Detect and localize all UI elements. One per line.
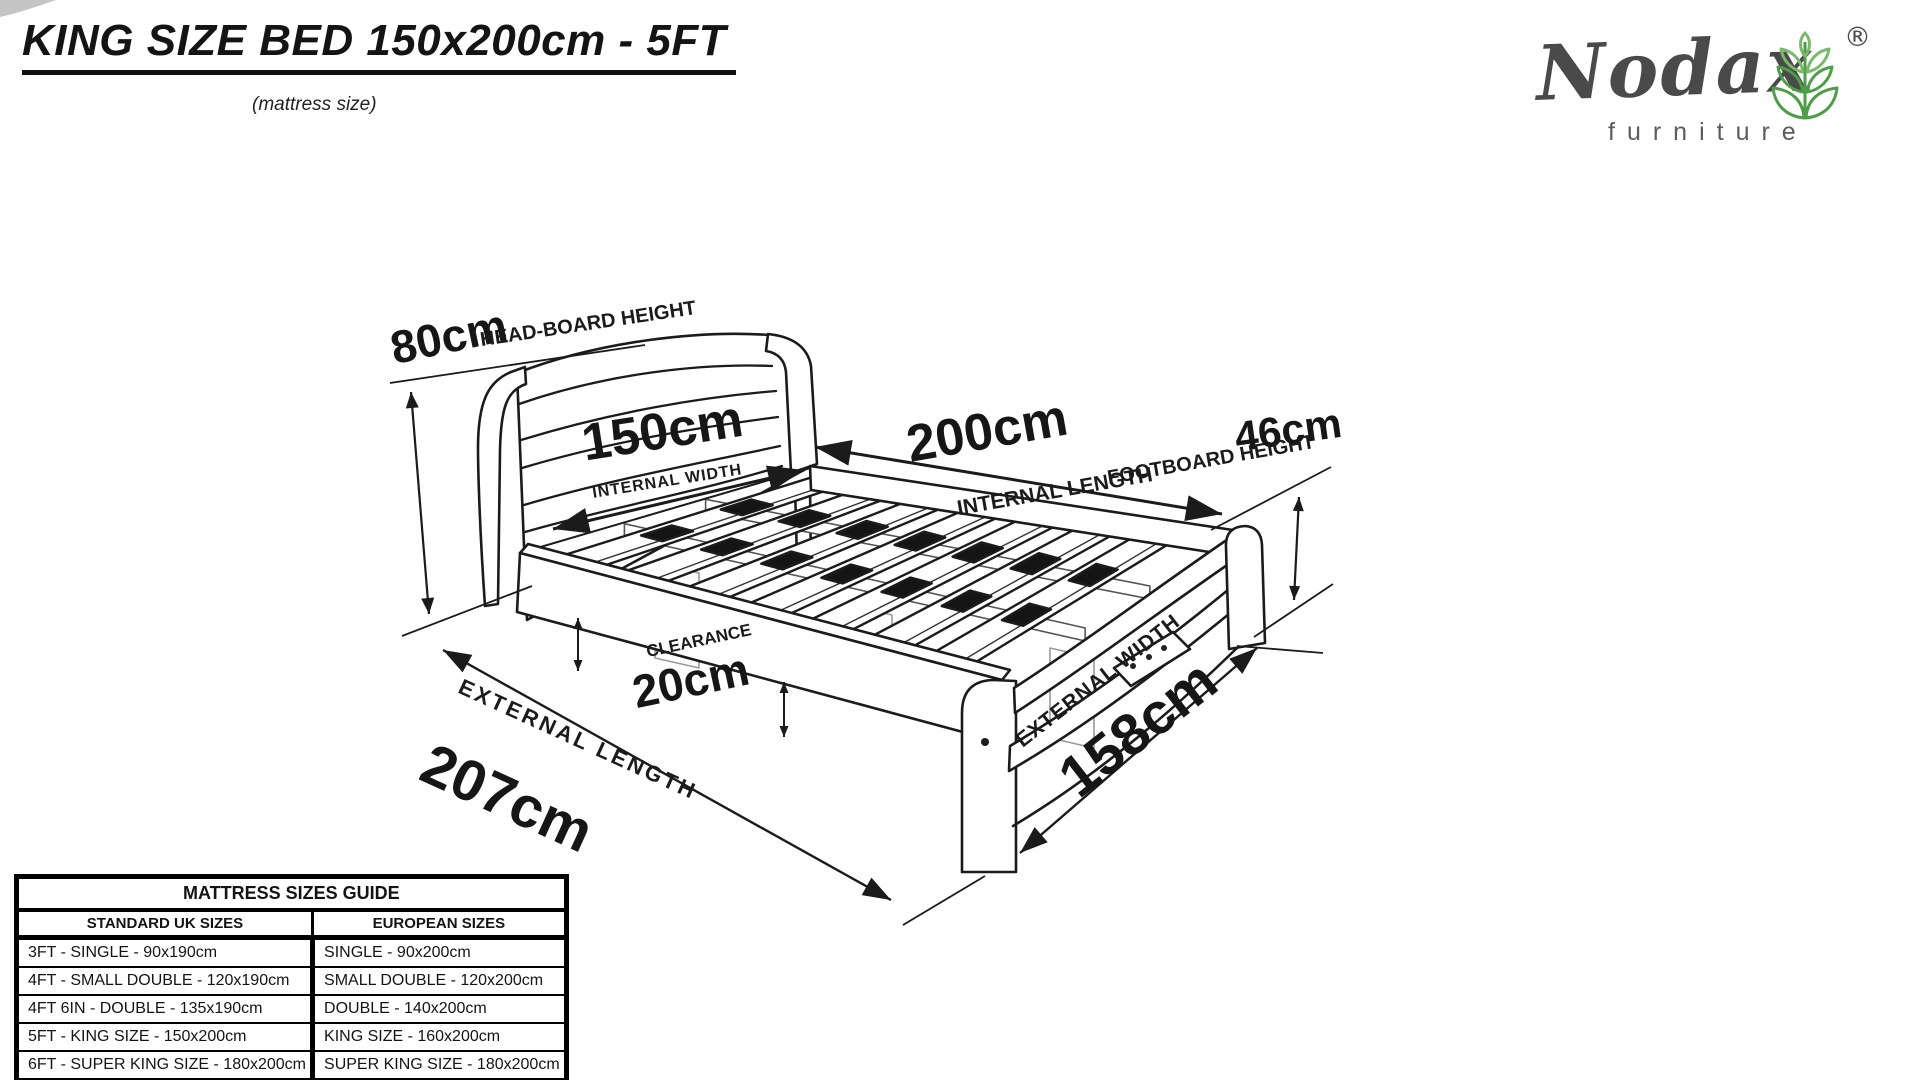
uk-size-cell: 5FT - KING SIZE - 150x200cm (17, 1023, 313, 1051)
table-row: 4FT - SMALL DOUBLE - 120x190cm SMALL DOU… (17, 967, 567, 995)
euro-size-cell: SMALL DOUBLE - 120x200cm (313, 967, 567, 995)
dim-internal-length-value: 200cm (902, 389, 1072, 474)
uk-size-cell: 4FT 6IN - DOUBLE - 135x190cm (17, 995, 313, 1023)
dim-footboard-height-label: FOOTBOARD HEIGHT (1106, 431, 1317, 489)
table-row: 6FT - SUPER KING SIZE - 180x200cm SUPER … (17, 1051, 567, 1080)
table-row: 5FT - KING SIZE - 150x200cm KING SIZE - … (17, 1023, 567, 1051)
page-corner-artifact (0, 0, 56, 17)
table-row: 3FT - SINGLE - 90x190cm SINGLE - 90x200c… (17, 938, 567, 968)
footboard-far-post (1226, 526, 1265, 649)
euro-size-cell: KING SIZE - 160x200cm (313, 1023, 567, 1051)
uk-size-cell: 6FT - SUPER KING SIZE - 180x200cm (17, 1051, 313, 1080)
table-title: MATTRESS SIZES GUIDE (17, 877, 567, 911)
euro-size-cell: DOUBLE - 140x200cm (313, 995, 567, 1023)
table-row: 4FT 6IN - DOUBLE - 135x190cm DOUBLE - 14… (17, 995, 567, 1023)
column-header-euro: EUROPEAN SIZES (313, 910, 567, 938)
product-dimension-sheet: KING SIZE BED 150x200cm - 5FT (mattress … (0, 0, 1920, 1080)
footboard-near-leg (962, 680, 1016, 872)
uk-size-cell: 4FT - SMALL DOUBLE - 120x190cm (17, 967, 313, 995)
column-header-uk: STANDARD UK SIZES (17, 910, 313, 938)
uk-size-cell: 3FT - SINGLE - 90x190cm (17, 938, 313, 968)
euro-size-cell: SUPER KING SIZE - 180x200cm (313, 1051, 567, 1080)
dim-external-length-value: 207cm (411, 731, 602, 865)
euro-size-cell: SINGLE - 90x200cm (313, 938, 567, 968)
mattress-sizes-table: MATTRESS SIZES GUIDE STANDARD UK SIZES E… (14, 874, 569, 1080)
